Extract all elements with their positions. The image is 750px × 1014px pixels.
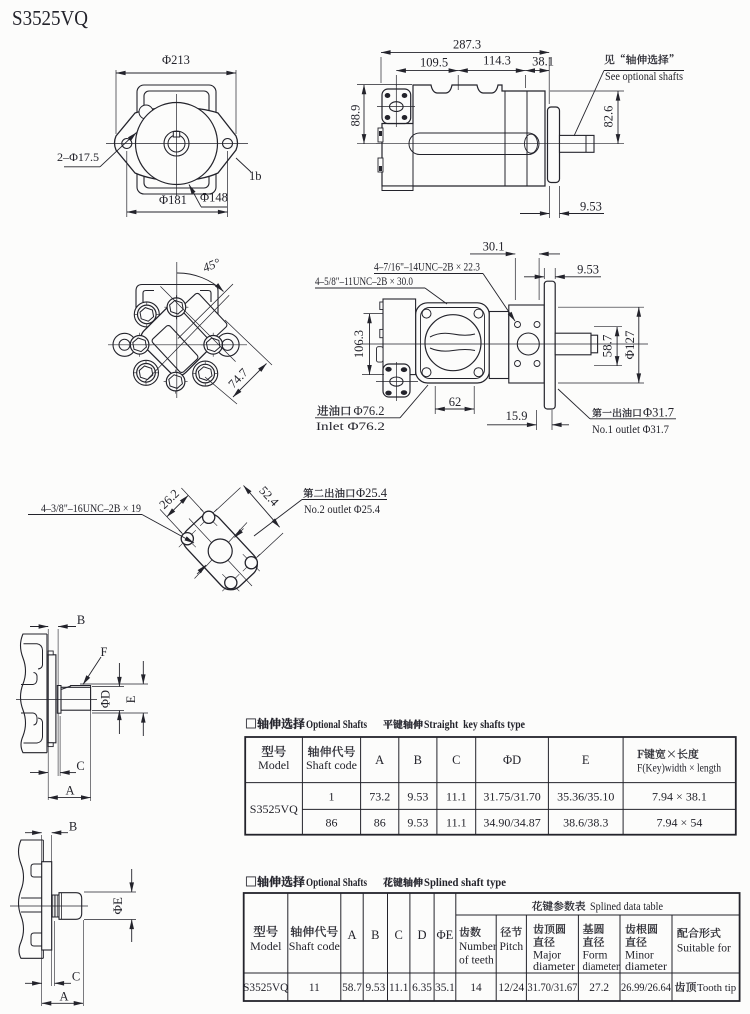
svg-text:1: 1 xyxy=(329,790,335,804)
svg-text:B: B xyxy=(77,613,85,627)
svg-text:B: B xyxy=(414,753,422,767)
svg-text:Minor: Minor xyxy=(625,950,654,962)
svg-text:Straight key shafts type: Straight key shafts type xyxy=(424,719,525,731)
svg-text:A: A xyxy=(65,784,74,798)
svg-text:9.53: 9.53 xyxy=(407,790,428,804)
svg-text:38.6/38.3: 38.6/38.3 xyxy=(563,816,608,830)
svg-text:287.3: 287.3 xyxy=(453,38,481,52)
svg-text:of teeth: of teeth xyxy=(459,955,494,967)
svg-text:34.90/34.87: 34.90/34.87 xyxy=(483,816,540,830)
svg-text:E: E xyxy=(124,695,138,703)
svg-text:F: F xyxy=(101,645,108,659)
svg-text:30.1: 30.1 xyxy=(483,240,505,254)
svg-text:diameter: diameter xyxy=(625,961,667,973)
svg-text:S3525VQ: S3525VQ xyxy=(12,6,88,30)
svg-text:7.94 × 54: 7.94 × 54 xyxy=(657,816,703,830)
svg-text:15.9: 15.9 xyxy=(506,409,528,423)
svg-text:86: 86 xyxy=(374,816,386,830)
svg-text:7.94 × 38.1: 7.94 × 38.1 xyxy=(652,790,707,804)
svg-text:4–7/16"–14UNC–2B × 22.3: 4–7/16"–14UNC–2B × 22.3 xyxy=(374,262,480,274)
svg-text:Splined data table: Splined data table xyxy=(590,901,663,913)
svg-text:1b: 1b xyxy=(249,169,262,183)
svg-text:114.3: 114.3 xyxy=(483,54,511,68)
svg-text:Φ127: Φ127 xyxy=(622,330,637,360)
svg-text:No.1 outlet Φ31.7: No.1 outlet Φ31.7 xyxy=(592,424,669,436)
svg-text:C: C xyxy=(72,970,80,984)
svg-text:4–3/8"–16UNC–2B × 19: 4–3/8"–16UNC–2B × 19 xyxy=(41,503,141,515)
svg-text:Inlet Φ76.2: Inlet Φ76.2 xyxy=(316,421,385,433)
svg-text:62: 62 xyxy=(449,395,462,409)
svg-text:11.1: 11.1 xyxy=(389,982,408,994)
svg-text:2–Φ17.5: 2–Φ17.5 xyxy=(57,150,99,164)
svg-text:4–5/8"–11UNC–2B × 30.0: 4–5/8"–11UNC–2B × 30.0 xyxy=(315,276,413,288)
svg-text:Number: Number xyxy=(459,941,497,953)
svg-text:26.99/26.64: 26.99/26.64 xyxy=(621,982,671,994)
svg-text:Model: Model xyxy=(258,758,290,772)
svg-text:Optional Shafts: Optional Shafts xyxy=(306,877,367,889)
svg-text:Φ25.4: Φ25.4 xyxy=(356,486,388,500)
svg-text:52.4: 52.4 xyxy=(256,483,282,509)
svg-text:Major: Major xyxy=(533,950,561,962)
svg-text:31.75/31.70: 31.75/31.70 xyxy=(483,790,540,804)
svg-text:Suitable for: Suitable for xyxy=(677,943,731,955)
svg-text:27.2: 27.2 xyxy=(589,982,609,994)
svg-text:ΦD: ΦD xyxy=(503,753,521,767)
svg-text:9.53: 9.53 xyxy=(407,816,428,830)
svg-text:Φ181: Φ181 xyxy=(159,193,187,207)
svg-text:109.5: 109.5 xyxy=(420,56,448,70)
svg-text:D: D xyxy=(417,928,426,942)
svg-text:C: C xyxy=(452,753,460,767)
svg-text:9.53: 9.53 xyxy=(580,200,602,214)
svg-text:86: 86 xyxy=(326,816,338,830)
svg-text:26.2: 26.2 xyxy=(156,486,181,511)
svg-text:106.3: 106.3 xyxy=(352,330,366,358)
svg-text:58.7: 58.7 xyxy=(342,982,362,994)
svg-text:Tooth tip: Tooth tip xyxy=(697,982,736,994)
svg-text:Shaft code: Shaft code xyxy=(306,758,357,772)
svg-text:S3525VQ: S3525VQ xyxy=(250,802,298,816)
svg-text:A: A xyxy=(59,990,68,1004)
svg-text:ΦE: ΦE xyxy=(110,897,125,915)
svg-text:82.6: 82.6 xyxy=(602,106,616,128)
svg-text:B: B xyxy=(69,820,77,834)
svg-text:S3525VQ: S3525VQ xyxy=(243,982,288,994)
svg-text:C: C xyxy=(395,928,403,942)
svg-text:11: 11 xyxy=(309,982,320,994)
svg-text:14: 14 xyxy=(470,982,482,994)
svg-text:diameter: diameter xyxy=(583,961,620,973)
svg-text:Splined shaft type: Splined shaft type xyxy=(424,877,506,889)
svg-text:73.2: 73.2 xyxy=(369,790,390,804)
svg-text:88.9: 88.9 xyxy=(349,105,363,127)
svg-text:No.2 outlet Φ25.4: No.2 outlet Φ25.4 xyxy=(304,504,380,516)
svg-text:74.7: 74.7 xyxy=(225,365,250,391)
svg-text:Φ31.7: Φ31.7 xyxy=(643,406,674,420)
svg-text:45°: 45° xyxy=(201,256,222,276)
svg-text:See optional shafts: See optional shafts xyxy=(605,71,683,83)
svg-text:31.70/31.67: 31.70/31.67 xyxy=(527,982,577,994)
svg-text:ΦD: ΦD xyxy=(99,690,113,708)
svg-text:diameter: diameter xyxy=(533,961,575,973)
svg-text:E: E xyxy=(582,753,590,767)
svg-text:A: A xyxy=(347,928,356,942)
svg-text:A: A xyxy=(375,753,384,767)
svg-text:6.35: 6.35 xyxy=(412,982,432,994)
svg-text:Optional Shafts: Optional Shafts xyxy=(306,719,367,731)
svg-text:9.53: 9.53 xyxy=(577,263,599,277)
svg-text:58.7: 58.7 xyxy=(600,334,615,357)
svg-text:9.53: 9.53 xyxy=(365,982,385,994)
svg-text:Model: Model xyxy=(250,939,282,953)
svg-text:Φ76.2: Φ76.2 xyxy=(354,404,385,418)
svg-text:Pitch: Pitch xyxy=(499,941,523,953)
svg-text:12/24: 12/24 xyxy=(498,982,524,994)
svg-text:Φ213: Φ213 xyxy=(162,53,190,67)
svg-text:11.1: 11.1 xyxy=(446,790,467,804)
svg-text:38.1: 38.1 xyxy=(532,55,554,69)
svg-text:35.36/35.10: 35.36/35.10 xyxy=(557,790,614,804)
svg-text:Shaft code: Shaft code xyxy=(289,939,340,953)
svg-text:Φ148: Φ148 xyxy=(200,190,228,204)
svg-text:35.1: 35.1 xyxy=(435,982,455,994)
svg-text:11.1: 11.1 xyxy=(446,816,467,830)
svg-text:F(Key)width × length: F(Key)width × length xyxy=(637,763,721,775)
svg-text:B: B xyxy=(371,928,379,942)
svg-text:Form: Form xyxy=(583,950,608,962)
svg-text:ΦE: ΦE xyxy=(437,928,454,942)
svg-text:C: C xyxy=(76,759,84,773)
